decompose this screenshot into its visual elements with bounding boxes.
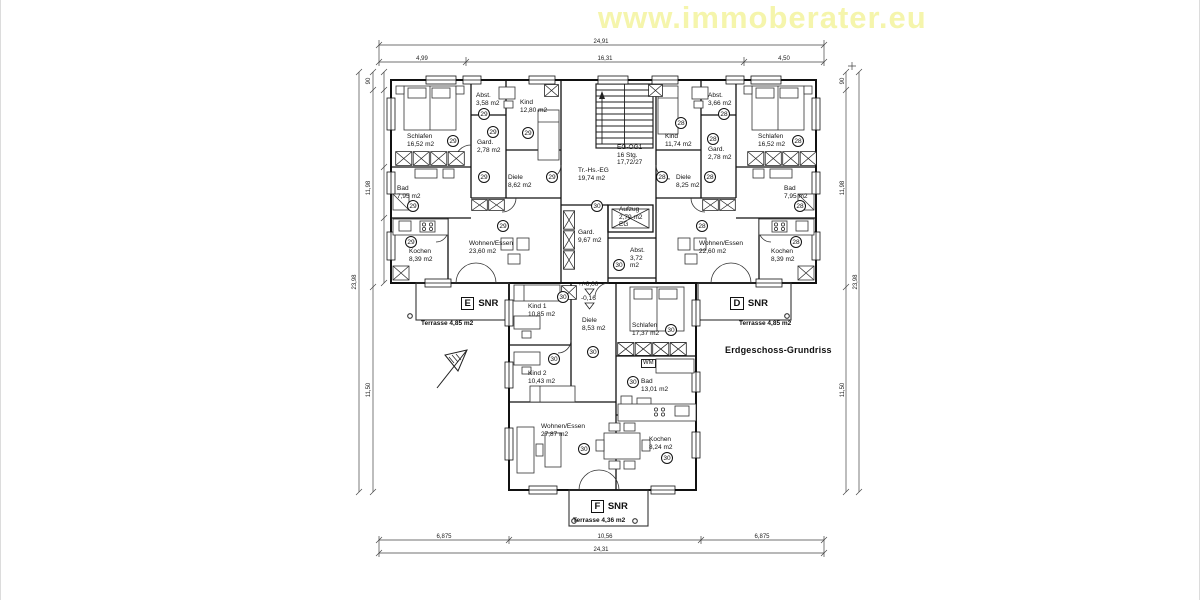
room-label-e-gard: Gard.2,78 m2 (477, 139, 501, 154)
unit-badge-e-wohnen: 29 (497, 220, 509, 232)
room-label-e-abst: Abst.3,58 m2 (476, 92, 500, 107)
room-label-d-diele: Diele8,25 m2 (676, 174, 700, 189)
unit-badge-e-diele: 29 (546, 171, 558, 183)
stairwell-label: Tr.-Hs.-EG19,74 m2 (578, 167, 609, 182)
unit-badge-d-kochen: 28 (790, 236, 802, 248)
unit-badge-f-wohnen: 30 (578, 443, 590, 455)
core-gard-label: Gard.9,67 m2 (578, 229, 602, 244)
terrace-label-e: Terrasse 4,85 m2 (421, 320, 473, 328)
unit-tag-e: ESNR (461, 297, 498, 310)
floor-plan-page: www.immoberater.eu (0, 0, 1200, 600)
unit-badge-e-schlafen: 29 (447, 135, 459, 147)
unit-badge-extra-3: 30 (613, 259, 625, 271)
unit-tag-f: FSNR (591, 500, 628, 513)
room-label-d-bad: Bad7,95 m2 (784, 185, 808, 200)
room-label-d-wohnen: Wohnen/Essen22,60 m2 (699, 240, 743, 255)
elevator-label: Aufzug2,79 m2EG (619, 206, 643, 229)
unit-badge-d-gard: 28 (707, 133, 719, 145)
stairs-label: EG-OG116 Stg.17,72/27 (617, 144, 642, 167)
unit-badge-f-kochen: 30 (661, 452, 673, 464)
unit-badge-extra-1: 28 (656, 171, 668, 183)
unit-badge-f-kind1: 30 (557, 291, 569, 303)
drawing-title: Erdgeschoss-Grundriss (725, 345, 832, 356)
unit-badge-e-bad: 29 (407, 200, 419, 212)
room-label-d-kind: Kind11,74 m2 (665, 133, 692, 148)
core-abst-label: Abst.3,72m2 (630, 247, 645, 270)
room-label-e-wohnen: Wohnen/Essen23,60 m2 (469, 240, 513, 255)
unit-badge-d-kind: 28 (675, 117, 687, 129)
unit-tag-d: DSNR (730, 297, 768, 310)
room-label-e-schlafen: Schlafen16,52 m2 (407, 133, 434, 148)
room-label-f-kind2: Kind 210,43 m2 (528, 370, 555, 385)
room-label-f-diele: Diele8,53 m2 (582, 317, 606, 332)
room-label-d-kochen: Kochen8,39 m2 (771, 248, 795, 263)
unit-badge-f-diele: 30 (587, 346, 599, 358)
unit-badge-f-bad: 30 (627, 376, 639, 388)
unit-badge-d-schlafen: 28 (792, 135, 804, 147)
room-label-f-kochen: Kochen8,24 m2 (649, 436, 673, 451)
terrace-label-f: Terrasse 4,36 m2 (573, 517, 625, 525)
room-label-e-diele: Diele8,62 m2 (508, 174, 532, 189)
plan-overlay: Schlafen16,52 m229Abst.3,58 m229Kind12,8… (1, 0, 1200, 600)
room-label-d-gard: Gard.2,78 m2 (708, 146, 732, 161)
unit-badge-e-abst: 29 (478, 108, 490, 120)
room-label-e-kochen: Kochen8,39 m2 (409, 248, 433, 263)
unit-badge-d-bad: 28 (794, 200, 806, 212)
room-label-f-schlafen: Schlafen17,37 m2 (632, 322, 659, 337)
washer-label: WM (641, 359, 656, 368)
unit-badge-e-kind: 29 (522, 127, 534, 139)
unit-badge-extra-2: 30 (591, 200, 603, 212)
level-mark-lower: -0,16 (581, 295, 596, 303)
unit-badge-f-schlafen: 30 (665, 324, 677, 336)
terrace-label-d: Terrasse 4,85 m2 (739, 320, 791, 328)
unit-badge-f-kind2: 30 (548, 353, 560, 365)
unit-badge-d-wohnen: 28 (696, 220, 708, 232)
room-label-f-kind1: Kind 110,85 m2 (528, 303, 555, 318)
room-label-f-wohnen: Wohnen/Essen27,87 m2 (541, 423, 585, 438)
unit-badge-d-abst: 28 (718, 108, 730, 120)
room-label-f-bad: Bad13,01 m2 (641, 378, 668, 393)
unit-badge-d-diele: 28 (704, 171, 716, 183)
unit-badge-e-kochen: 29 (405, 236, 417, 248)
level-mark-upper: +/-0,00 (578, 281, 598, 289)
unit-badge-e-gard: 29 (487, 126, 499, 138)
unit-badge-extra-0: 29 (478, 171, 490, 183)
room-label-d-abst: Abst.3,66 m2 (708, 92, 732, 107)
room-label-e-bad: Bad7,95 m2 (397, 185, 421, 200)
room-label-d-schlafen: Schlafen16,52 m2 (758, 133, 785, 148)
room-label-e-kind: Kind12,80 m2 (520, 99, 547, 114)
